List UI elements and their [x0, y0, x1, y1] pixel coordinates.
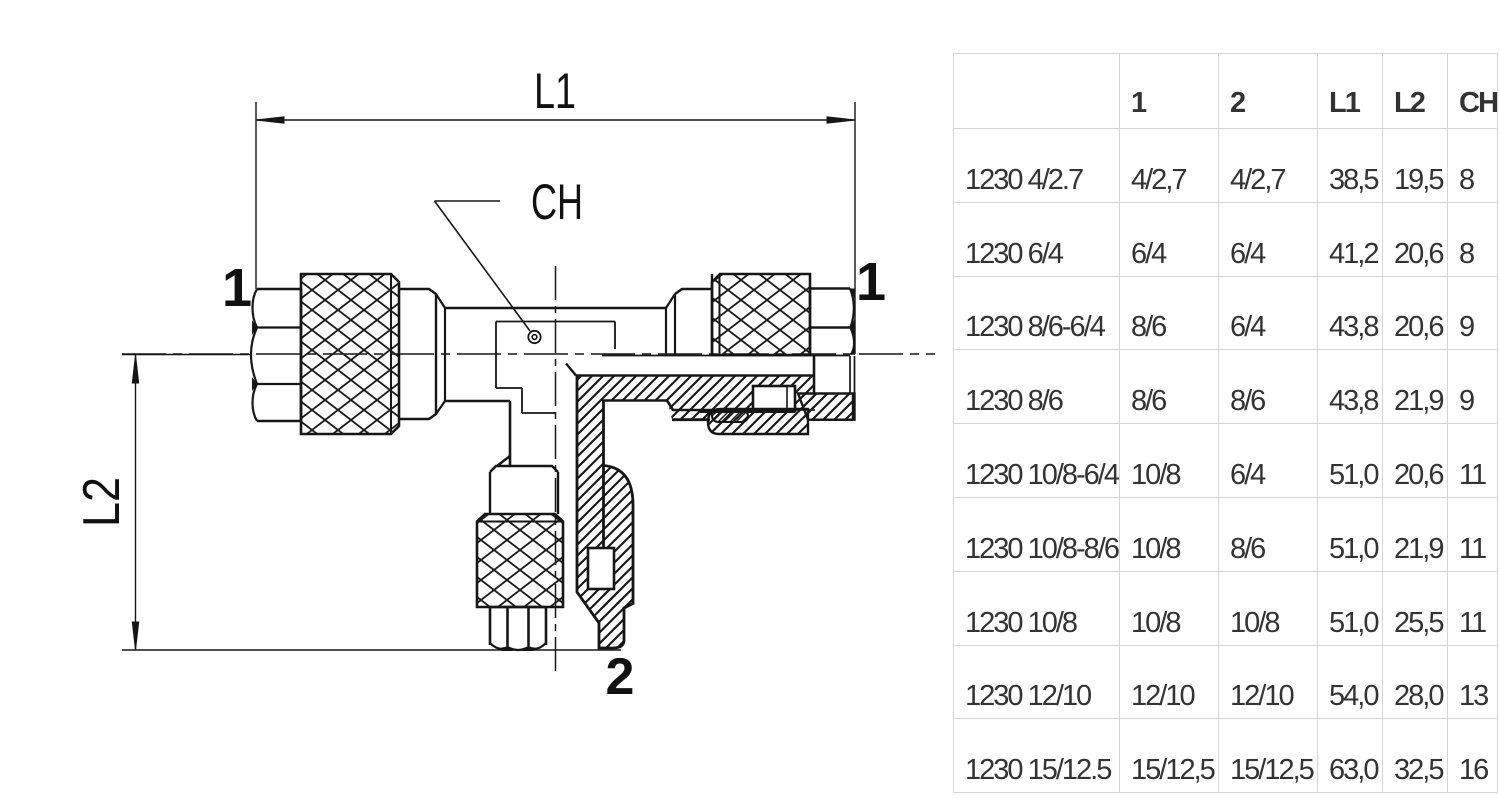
svg-text:1: 1	[856, 252, 886, 312]
svg-text:L2: L2	[73, 477, 131, 527]
svg-text:1: 1	[222, 258, 252, 318]
svg-text:CH: CH	[531, 174, 583, 230]
svg-text:L1: L1	[534, 63, 576, 119]
svg-text:2: 2	[606, 648, 635, 706]
